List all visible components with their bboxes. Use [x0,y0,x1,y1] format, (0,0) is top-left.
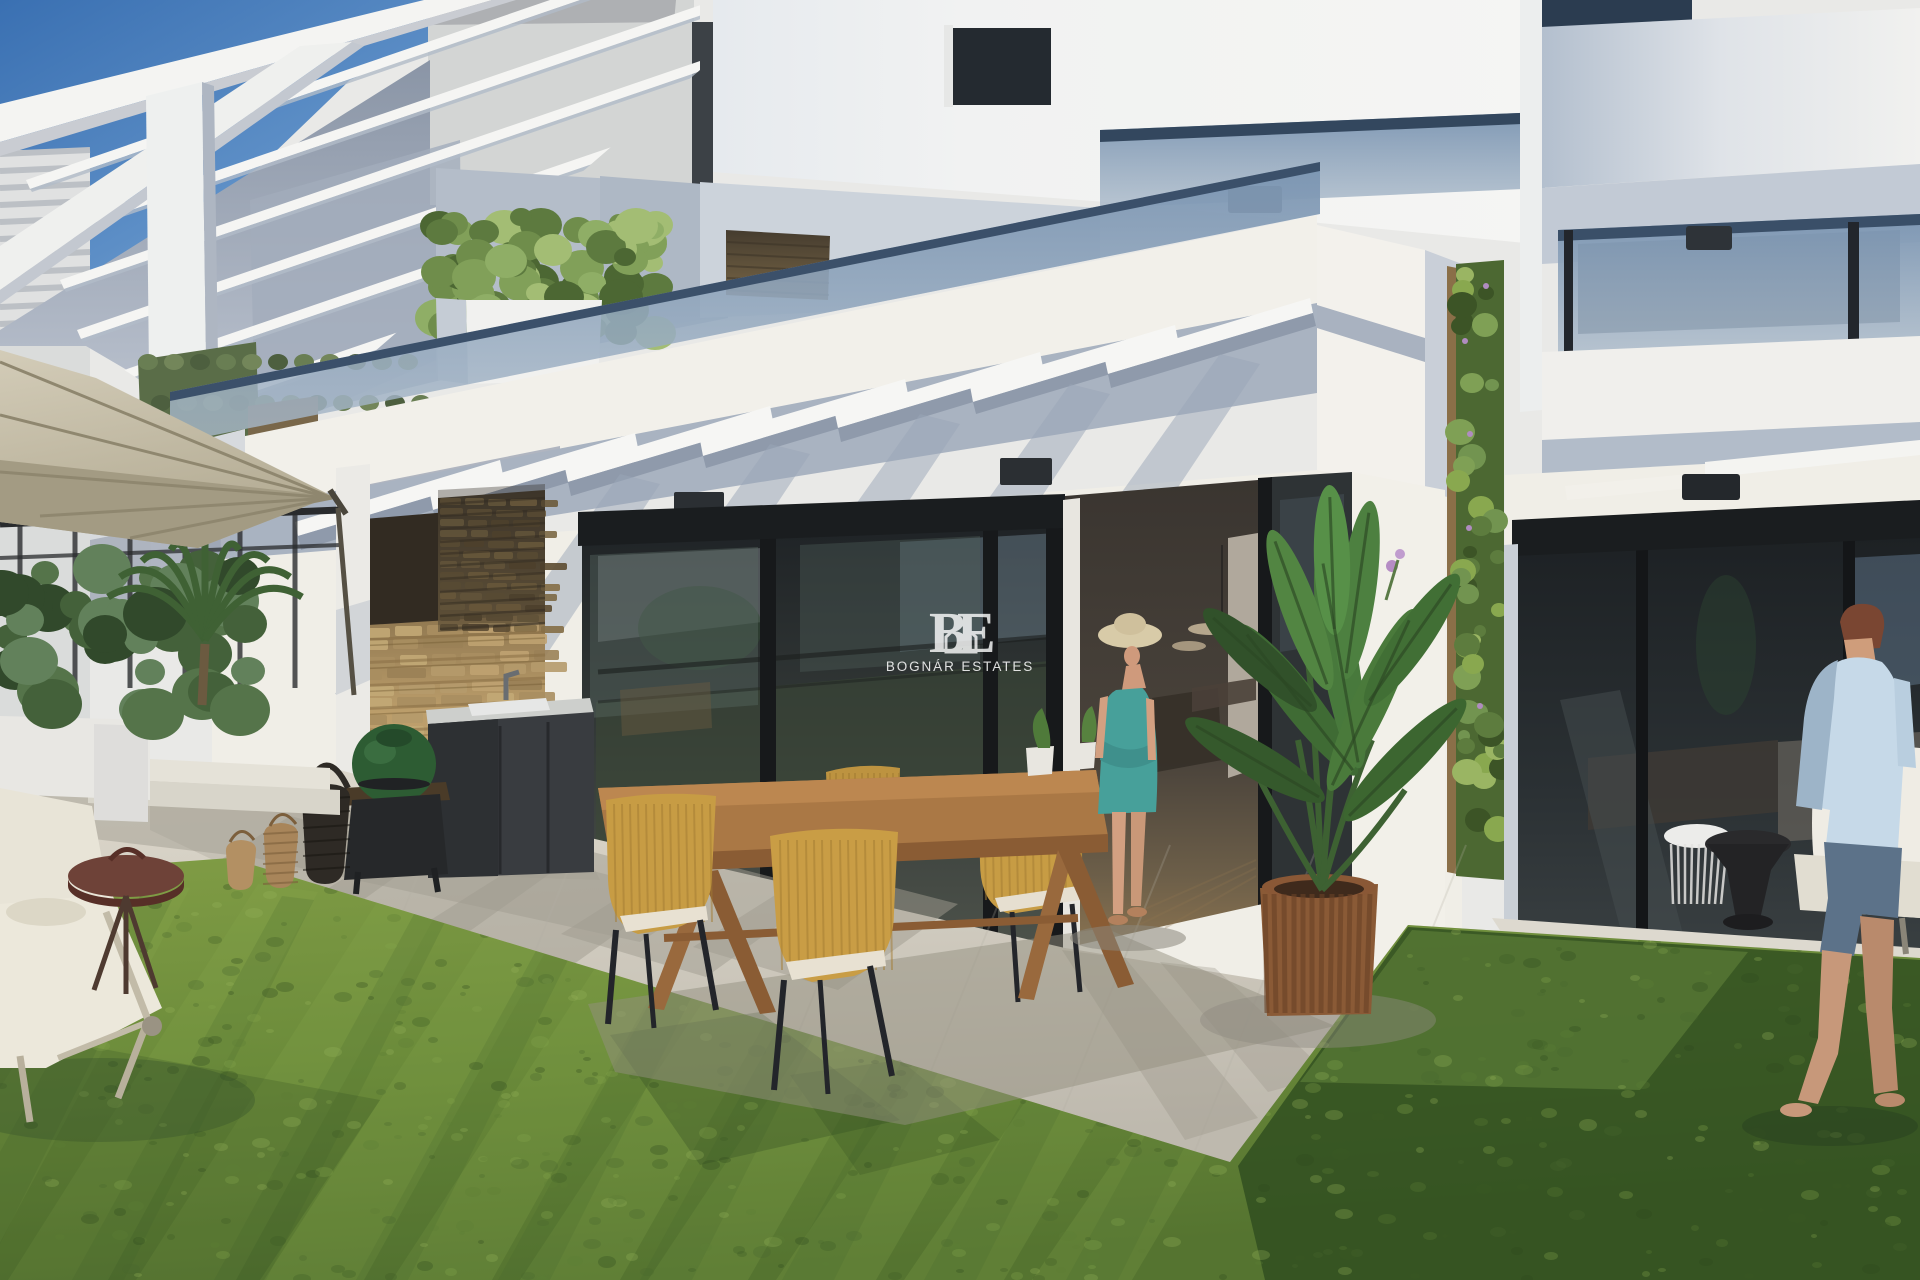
svg-text:E: E [957,600,996,665]
svg-text:BOGNÁR ESTATES: BOGNÁR ESTATES [886,659,1034,674]
